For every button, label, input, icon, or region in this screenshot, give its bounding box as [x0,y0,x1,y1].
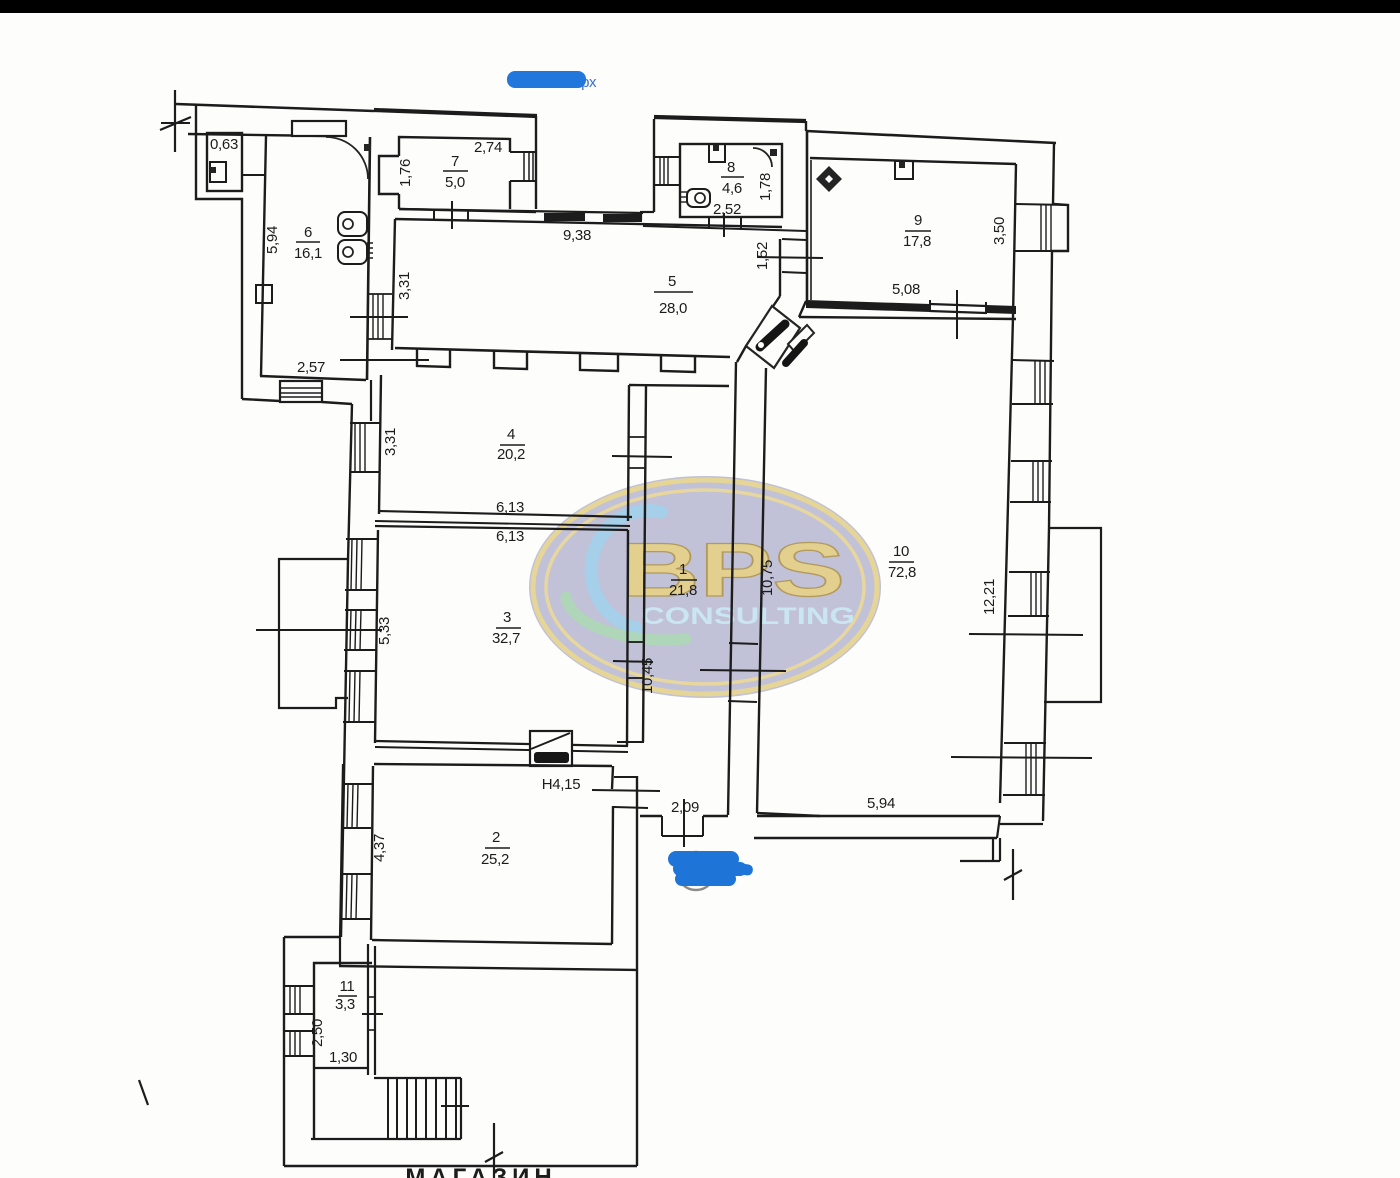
svg-text:72,8: 72,8 [888,564,916,581]
svg-text:2: 2 [492,829,500,846]
svg-text:3,31: 3,31 [396,272,413,300]
svg-text:6,13: 6,13 [496,499,524,516]
svg-text:21,8: 21,8 [669,582,697,599]
svg-text:11: 11 [340,978,355,995]
svg-text:H4,15: H4,15 [542,776,581,793]
svg-text:1,52: 1,52 [754,242,771,270]
svg-text:5,08: 5,08 [892,281,920,298]
svg-text:1,76: 1,76 [397,159,414,187]
svg-text:8: 8 [727,159,735,176]
svg-text:16,1: 16,1 [294,245,322,262]
svg-text:2,74: 2,74 [474,139,502,156]
svg-text:2,57: 2,57 [297,359,325,376]
svg-text:2,52: 2,52 [713,201,741,218]
svg-text:3,3: 3,3 [335,996,355,1013]
svg-text:0,63: 0,63 [210,136,238,153]
svg-text:6: 6 [304,224,312,241]
svg-text:12,21: 12,21 [981,579,998,615]
svg-text:5: 5 [668,273,676,290]
svg-text:5,0: 5,0 [445,174,465,191]
svg-text:9,38: 9,38 [563,227,591,244]
svg-text:МАГАЗИН: МАГАЗИН [405,1164,556,1178]
svg-text:4,37: 4,37 [371,834,388,862]
svg-text:10,45: 10,45 [639,658,656,694]
svg-text:28,0: 28,0 [659,300,687,317]
svg-text:4,6: 4,6 [722,180,742,197]
svg-text:2,50: 2,50 [309,1019,326,1047]
svg-text:4: 4 [507,426,515,443]
svg-text:17,8: 17,8 [903,233,931,250]
svg-text:3: 3 [503,609,511,626]
svg-text:1: 1 [679,561,687,578]
svg-text:1,78: 1,78 [757,173,774,201]
svg-text:32,7: 32,7 [492,630,520,647]
svg-text:6,13: 6,13 [496,528,524,545]
svg-text:5,94: 5,94 [867,795,895,812]
svg-text:10: 10 [893,543,909,560]
svg-text:3,50: 3,50 [991,217,1008,245]
svg-text:25,2: 25,2 [481,851,509,868]
svg-text:3,31: 3,31 [382,428,399,456]
svg-text:7: 7 [451,153,459,170]
svg-text:1,30: 1,30 [329,1049,357,1066]
svg-text:20,2: 20,2 [497,446,525,463]
svg-text:5,33: 5,33 [376,617,393,645]
svg-text:9: 9 [914,212,922,229]
svg-text:CONSULTING: CONSULTING [641,603,855,630]
svg-text:5,94: 5,94 [264,226,281,254]
svg-text:2,09: 2,09 [671,799,699,816]
svg-text:10,75: 10,75 [759,560,776,596]
